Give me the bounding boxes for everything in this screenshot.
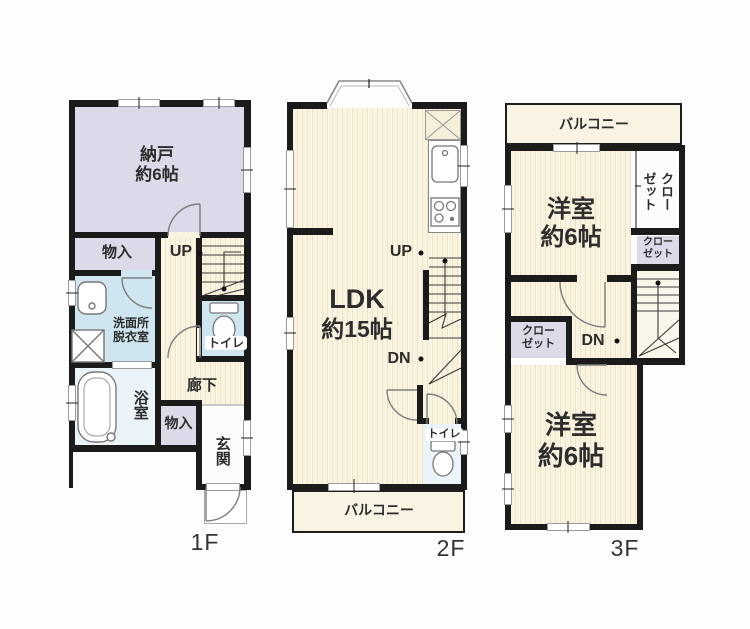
wall-segment xyxy=(637,358,643,530)
wall-segment xyxy=(505,316,566,322)
balcony-label-3f: バルコニー xyxy=(536,116,652,133)
wall-segment xyxy=(412,102,467,109)
balcony-label-2f: バルコニー xyxy=(330,502,428,519)
door-opening xyxy=(197,328,201,356)
window xyxy=(118,99,160,107)
entrance-porch xyxy=(204,490,247,524)
wall-segment xyxy=(566,316,572,365)
door-opening xyxy=(121,270,152,276)
room-label-bedroom-lower: 洋室 約6帖 xyxy=(511,410,631,471)
room-label-bedroom-upper: 洋室 約6帖 xyxy=(521,196,621,253)
window xyxy=(547,523,590,531)
floor-label-3f: 3F xyxy=(608,535,642,562)
window xyxy=(286,317,294,350)
window xyxy=(68,280,76,306)
wall-segment xyxy=(287,102,293,150)
window xyxy=(68,385,76,421)
room-label-entrance: 玄関 xyxy=(213,426,231,476)
room-label-ldk: LDK 約15帖 xyxy=(307,284,407,343)
wall-segment xyxy=(423,270,429,340)
wall-segment xyxy=(202,295,251,301)
closet-right-label: クロー ゼット xyxy=(641,156,675,226)
window xyxy=(243,420,251,456)
closet-middle-label: クロー ゼット xyxy=(637,237,679,261)
wall-segment xyxy=(69,445,202,452)
wall-segment xyxy=(287,228,293,317)
wall-segment xyxy=(607,275,637,282)
room-label-hallway: 廊下 xyxy=(180,377,224,395)
floor-label-2f: 2F xyxy=(434,535,468,562)
bay-window xyxy=(327,79,412,106)
closet-left-label: クロー ゼット xyxy=(513,325,564,351)
wall-segment xyxy=(505,275,577,282)
floor-label-1f: 1F xyxy=(188,529,222,556)
entrance-step-line xyxy=(202,404,244,406)
sliding-door-balcony xyxy=(328,483,380,491)
room-label-toilet-2f: トイレ xyxy=(425,428,463,441)
stairs-down-label-2f: DN xyxy=(384,350,414,369)
wall-segment xyxy=(455,418,467,424)
room-label-storage: 納戸 約6帖 xyxy=(97,145,217,185)
window xyxy=(286,150,294,228)
wall-segment xyxy=(679,145,685,365)
floor-plan-image: 納戸 約6帖 物入 UP 洗面所 脱衣室 トイレ 廊下 浴室 物入 玄関 1F xyxy=(0,0,750,629)
stairs-down-label-3f: DN xyxy=(578,332,608,351)
wall-segment xyxy=(287,228,333,235)
wall-segment xyxy=(631,228,685,235)
window xyxy=(504,473,512,505)
wall-segment xyxy=(631,271,637,358)
closet-partition-line xyxy=(635,151,637,228)
room-label-closet-upper: 物入 xyxy=(84,244,150,262)
wall-segment xyxy=(196,356,251,362)
window xyxy=(243,147,251,193)
room-label-bathroom: 浴室 xyxy=(131,380,149,430)
room-label-washroom: 洗面所 脱衣室 xyxy=(98,316,164,344)
door-opening xyxy=(168,232,200,238)
wall-segment xyxy=(155,400,202,406)
kitchen-counter xyxy=(428,140,461,233)
stairs-floor-3f xyxy=(637,271,679,358)
wall-segment xyxy=(69,452,73,488)
sliding-door-bathroom xyxy=(112,361,152,369)
room-label-closet-lower: 物入 xyxy=(160,415,197,432)
wall-segment xyxy=(461,187,467,430)
wall-segment xyxy=(566,358,685,365)
window xyxy=(203,99,235,107)
window xyxy=(460,145,468,187)
sliding-door-balcony-3f xyxy=(553,144,600,152)
wall-segment xyxy=(287,102,327,109)
stairs-up-label-2f: UP xyxy=(386,243,416,262)
window xyxy=(504,185,512,233)
wall-segment xyxy=(631,264,685,271)
room-label-toilet: トイレ xyxy=(205,336,247,350)
entrance-door-opening xyxy=(206,483,240,491)
wall-segment xyxy=(417,418,429,424)
refrigerator-space xyxy=(425,110,461,140)
stairs-up-label: UP xyxy=(166,243,196,262)
wall-segment xyxy=(461,102,467,145)
wall-segment xyxy=(287,350,293,490)
